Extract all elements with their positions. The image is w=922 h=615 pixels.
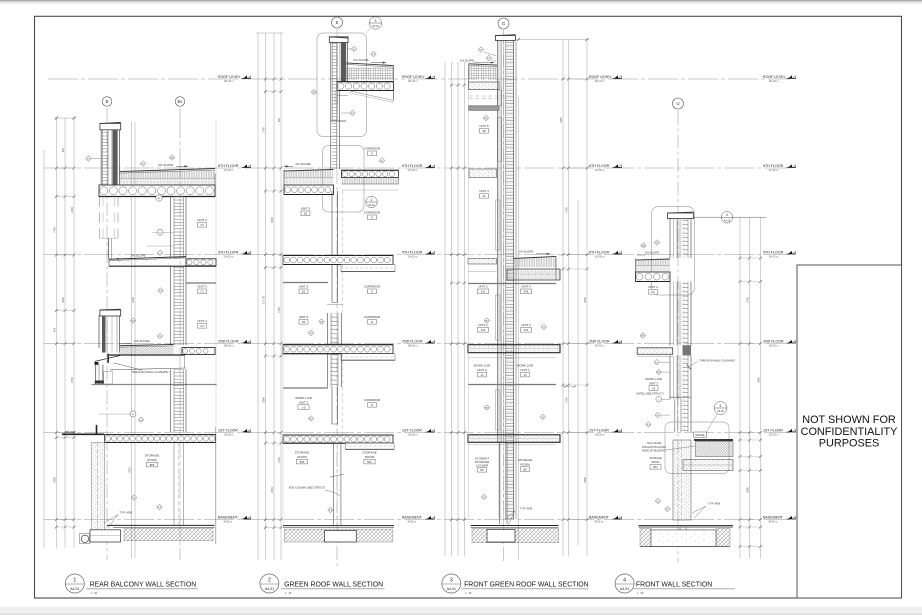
svg-text:UNIT 2: UNIT 2	[478, 285, 488, 289]
svg-text:E: E	[371, 403, 373, 407]
svg-text:TYP. AFB: TYP. AFB	[520, 507, 532, 511]
svg-text:6TH FLOOR: 6TH FLOOR	[763, 164, 784, 168]
svg-text:99.92 m: 99.92 m	[769, 521, 778, 524]
svg-text:FRONT GREEN ROOF WALL SECTION: FRONT GREEN ROOF WALL SECTION	[464, 582, 589, 589]
svg-text:2% SLOPE: 2% SLOPE	[130, 253, 145, 257]
svg-text:2745: 2745	[747, 297, 750, 303]
svg-text:76mm RIGID: 76mm RIGID	[647, 442, 662, 445]
svg-text:ROOM: ROOM	[365, 455, 375, 459]
svg-text:99.92 m: 99.92 m	[595, 521, 604, 524]
svg-text:E: E	[371, 152, 373, 156]
svg-text:99.92 m: 99.92 m	[224, 521, 233, 524]
svg-text:THROUGH WALL FLASHING: THROUGH WALL FLASHING	[699, 358, 735, 362]
svg-text:2745: 2745	[278, 307, 281, 313]
svg-text:106.92 m: 106.92 m	[224, 345, 234, 348]
svg-text:G: G	[502, 21, 505, 26]
svg-text:CORRIDOR: CORRIDOR	[364, 211, 381, 215]
svg-text:1 : 96: 1 : 96	[465, 591, 472, 595]
svg-text:UNIT 4: UNIT 4	[521, 285, 531, 289]
svg-text:5TH FLOOR: 5TH FLOOR	[589, 251, 610, 255]
svg-text:PURPOSES: PURPOSES	[819, 438, 880, 450]
svg-text:CORRIDOR: CORRIDOR	[364, 398, 381, 402]
svg-text:3 FLRS: 3 FLRS	[263, 295, 266, 304]
svg-text:1-D: 1-D	[301, 405, 305, 409]
svg-text:4B: 4B	[482, 129, 485, 133]
svg-text:UNIT 5: UNIT 5	[299, 285, 309, 289]
svg-text:D2: D2	[302, 320, 306, 324]
svg-text:ROOM: ROOM	[147, 458, 157, 462]
svg-text:A4.2b: A4.2b	[717, 410, 724, 413]
svg-text:1 : 96: 1 : 96	[91, 591, 98, 595]
svg-text:UNIT 2: UNIT 2	[521, 323, 531, 327]
svg-text:2591: 2591	[129, 467, 132, 473]
svg-text:W10 COLUMN (SEE STRUCT): W10 COLUMN (SEE STRUCT)	[289, 486, 325, 490]
svg-text:1 : 96: 1 : 96	[637, 591, 644, 595]
svg-text:4A: 4A	[482, 194, 485, 198]
svg-text:2% SLOPE: 2% SLOPE	[519, 250, 533, 254]
svg-text:2% SLOPE: 2% SLOPE	[353, 58, 368, 62]
svg-text:UNIT 3: UNIT 3	[197, 218, 207, 222]
svg-text:2896: 2896	[747, 487, 750, 493]
svg-text:106.92 m: 106.92 m	[595, 345, 605, 348]
svg-text:UNIT 2: UNIT 2	[477, 368, 487, 372]
svg-text:114.92 m: 114.92 m	[408, 256, 418, 259]
svg-text:131.92 m: 131.92 m	[224, 80, 234, 83]
svg-text:106.92 m: 106.92 m	[769, 345, 779, 348]
svg-text:99.92 m: 99.92 m	[408, 521, 417, 524]
svg-text:A4.01: A4.01	[265, 587, 274, 591]
svg-text:U: U	[676, 101, 679, 106]
svg-text:TYP. AFB: TYP. AFB	[119, 511, 131, 515]
svg-text:216: 216	[524, 328, 529, 332]
svg-text:UNIT 4: UNIT 4	[479, 189, 489, 193]
svg-text:C4: C4	[652, 386, 656, 390]
svg-text:3: 3	[375, 19, 377, 23]
svg-text:2% SLOPE: 2% SLOPE	[645, 251, 659, 255]
svg-text:117.92 m: 117.92 m	[408, 169, 418, 172]
svg-text:NOT SHOWN FOR: NOT SHOWN FOR	[802, 414, 896, 426]
svg-text:2% SLOPE: 2% SLOPE	[134, 339, 149, 343]
svg-text:3: 3	[450, 578, 453, 584]
svg-text:1ST FLOOR: 1ST FLOOR	[763, 429, 783, 433]
svg-text:5: 5	[720, 404, 722, 408]
svg-text:2745: 2745	[278, 457, 281, 463]
svg-text:ROOF LEVEL: ROOF LEVEL	[218, 75, 241, 79]
svg-text:409: 409	[524, 290, 529, 294]
svg-text:103.92 m: 103.92 m	[224, 434, 234, 437]
svg-text:E: E	[371, 216, 373, 220]
svg-text:A4.01: A4.01	[70, 587, 79, 591]
svg-text:2% SLOPE: 2% SLOPE	[158, 163, 173, 167]
svg-text:LOCKER: LOCKER	[476, 464, 489, 468]
svg-text:2896: 2896	[54, 477, 57, 483]
svg-text:UNIT 2: UNIT 2	[478, 323, 488, 327]
svg-text:UNIT 5: UNIT 5	[299, 315, 309, 319]
svg-text:GRADE: GRADE	[65, 430, 75, 434]
svg-text:B05: B05	[150, 463, 155, 467]
svg-text:LINTEL (SEE STRUCT.): LINTEL (SEE STRUCT.)	[636, 392, 664, 396]
svg-text:A4.01: A4.01	[447, 587, 456, 591]
svg-text:8230: 8230	[62, 297, 65, 303]
svg-text:UNIT 2: UNIT 2	[649, 381, 659, 385]
svg-text:B: B	[106, 99, 109, 104]
svg-text:610: 610	[278, 117, 281, 122]
svg-text:C3: C3	[200, 290, 204, 294]
svg-text:411: 411	[481, 290, 486, 294]
svg-text:UNIT 5: UNIT 5	[301, 207, 311, 211]
svg-text:B9: B9	[480, 468, 484, 472]
svg-text:106.92 m: 106.92 m	[408, 345, 418, 348]
svg-text:ROOF LEVEL: ROOF LEVEL	[589, 75, 612, 79]
svg-text:2896: 2896	[584, 477, 587, 483]
svg-text:103.92 m: 103.92 m	[769, 434, 779, 437]
svg-text:UNIT 1: UNIT 1	[520, 368, 530, 372]
svg-text:2ND FLOOR: 2ND FLOOR	[218, 340, 239, 344]
svg-text:215: 215	[481, 328, 486, 332]
svg-text:103.92 m: 103.92 m	[595, 434, 605, 437]
svg-text:E: E	[371, 320, 373, 324]
svg-text:117.92 m: 117.92 m	[224, 169, 234, 172]
svg-text:114.92 m: 114.92 m	[595, 256, 605, 259]
svg-text:UNIT 5: UNIT 5	[479, 124, 489, 128]
svg-text:131.92 m: 131.92 m	[769, 80, 779, 83]
svg-text:5TH FLOOR: 5TH FLOOR	[763, 251, 784, 255]
svg-text:4: 4	[623, 578, 626, 584]
svg-text:2% SLOPE: 2% SLOPE	[295, 162, 310, 166]
svg-text:B01: B01	[653, 466, 658, 469]
svg-text:2134: 2134	[71, 207, 74, 213]
svg-text:1: 1	[73, 578, 76, 584]
svg-text:INSULATION ALONG: INSULATION ALONG	[642, 446, 666, 449]
svg-text:2745: 2745	[566, 397, 569, 403]
svg-text:2ND FLOOR: 2ND FLOOR	[763, 340, 784, 344]
svg-text:CONFIDENTIALITY: CONFIDENTIALITY	[801, 426, 899, 438]
svg-text:1ST FLOOR: 1ST FLOOR	[402, 429, 422, 433]
svg-text:B8: B8	[523, 467, 527, 471]
svg-text:1ST FLOOR: 1ST FLOOR	[589, 429, 609, 433]
svg-text:GREEN ROOF WALL SECTION: GREEN ROOF WALL SECTION	[284, 582, 383, 589]
svg-text:A4.01: A4.01	[620, 587, 629, 591]
svg-text:D2: D2	[302, 290, 306, 294]
svg-text:E: E	[371, 290, 373, 294]
svg-text:C3: C3	[200, 223, 204, 227]
svg-text:ROOM: ROOM	[652, 461, 660, 464]
svg-text:8230: 8230	[584, 297, 587, 303]
svg-text:6TH FLOOR: 6TH FLOOR	[402, 164, 423, 168]
svg-text:A4.2a: A4.2a	[368, 204, 375, 207]
svg-text:BASEMENT: BASEMENT	[763, 516, 784, 520]
svg-text:2% SLOPE: 2% SLOPE	[460, 59, 474, 63]
svg-text:UNIT 3: UNIT 3	[197, 319, 207, 323]
svg-text:BASE OF BUILDING: BASE OF BUILDING	[642, 450, 665, 453]
svg-text:B15: B15	[300, 460, 305, 464]
svg-text:CORRIDOR: CORRIDOR	[364, 285, 381, 289]
svg-text:610: 610	[62, 147, 65, 152]
svg-text:5TH FLOOR: 5TH FLOOR	[402, 251, 423, 255]
svg-text:B16: B16	[367, 460, 372, 464]
svg-text:TYP. AFB: TYP. AFB	[708, 502, 720, 506]
svg-text:UNIT 2: UNIT 2	[299, 400, 309, 404]
svg-text:A4.2b: A4.2b	[724, 219, 731, 222]
svg-text:BASEMENT: BASEMENT	[218, 516, 239, 520]
svg-text:4: 4	[726, 213, 728, 217]
svg-text:117.92 m: 117.92 m	[769, 169, 779, 172]
svg-text:114.92 m: 114.92 m	[769, 256, 779, 259]
svg-text:2591: 2591	[271, 487, 274, 493]
svg-text:FRONT WALL SECTION: FRONT WALL SECTION	[636, 582, 712, 589]
svg-text:C3: C3	[200, 324, 204, 328]
svg-text:1 : 96: 1 : 96	[285, 591, 292, 595]
svg-text:ROOF LEVEL: ROOF LEVEL	[402, 75, 425, 79]
svg-text:ROOM: ROOM	[520, 462, 530, 466]
svg-text:114.92 m: 114.92 m	[224, 256, 234, 259]
svg-text:THROUGH WALL FLASHING: THROUGH WALL FLASHING	[131, 370, 168, 374]
svg-text:914: 914	[54, 327, 57, 332]
svg-text:2: 2	[268, 578, 271, 584]
svg-text:5490: 5490	[758, 377, 761, 383]
svg-text:ROOM: ROOM	[297, 455, 307, 459]
svg-text:ROOF LEVEL: ROOF LEVEL	[763, 75, 786, 79]
svg-text:103.92 m: 103.92 m	[408, 434, 418, 437]
svg-text:2ND FLOOR: 2ND FLOOR	[402, 340, 423, 344]
svg-text:D2: D2	[304, 212, 308, 216]
svg-text:2745: 2745	[54, 227, 57, 233]
svg-text:2ND FLOOR: 2ND FLOOR	[589, 340, 610, 344]
svg-text:UNIT 3: UNIT 3	[197, 285, 207, 289]
svg-text:CORRIDOR: CORRIDOR	[364, 147, 381, 151]
svg-text:2745: 2745	[566, 207, 569, 213]
svg-text:1ST FLOOR: 1ST FLOOR	[218, 429, 238, 433]
svg-text:2: 2	[371, 198, 373, 202]
svg-text:2745: 2745	[263, 127, 266, 133]
svg-text:117.92 m: 117.92 m	[595, 169, 605, 172]
svg-text:BASEMENT: BASEMENT	[402, 516, 423, 520]
svg-text:3355: 3355	[560, 117, 563, 123]
svg-text:5TH FLOOR: 5TH FLOOR	[218, 251, 239, 255]
svg-text:GRADE: GRADE	[695, 433, 704, 437]
svg-text:E: E	[336, 20, 339, 25]
svg-text:6TH FLOOR: 6TH FLOOR	[218, 164, 239, 168]
svg-text:BASEMENT: BASEMENT	[589, 516, 610, 520]
svg-text:STORAGE: STORAGE	[649, 457, 662, 460]
svg-text:6TH FLOOR: 6TH FLOOR	[589, 164, 610, 168]
svg-text:UNIT 4: UNIT 4	[648, 285, 658, 289]
svg-text:2745: 2745	[132, 297, 135, 303]
svg-text:CORRIDOR: CORRIDOR	[364, 315, 381, 319]
svg-text:8230: 8230	[271, 217, 274, 223]
svg-text:131.92 m: 131.92 m	[408, 80, 418, 83]
svg-text:REAR BALCONY WALL SECTION: REAR BALCONY WALL SECTION	[90, 582, 197, 589]
svg-text:2896: 2896	[263, 397, 266, 403]
svg-text:2745: 2745	[71, 377, 74, 383]
svg-text:131.92 m: 131.92 m	[595, 80, 605, 83]
svg-text:A4.01: A4.01	[372, 25, 379, 28]
